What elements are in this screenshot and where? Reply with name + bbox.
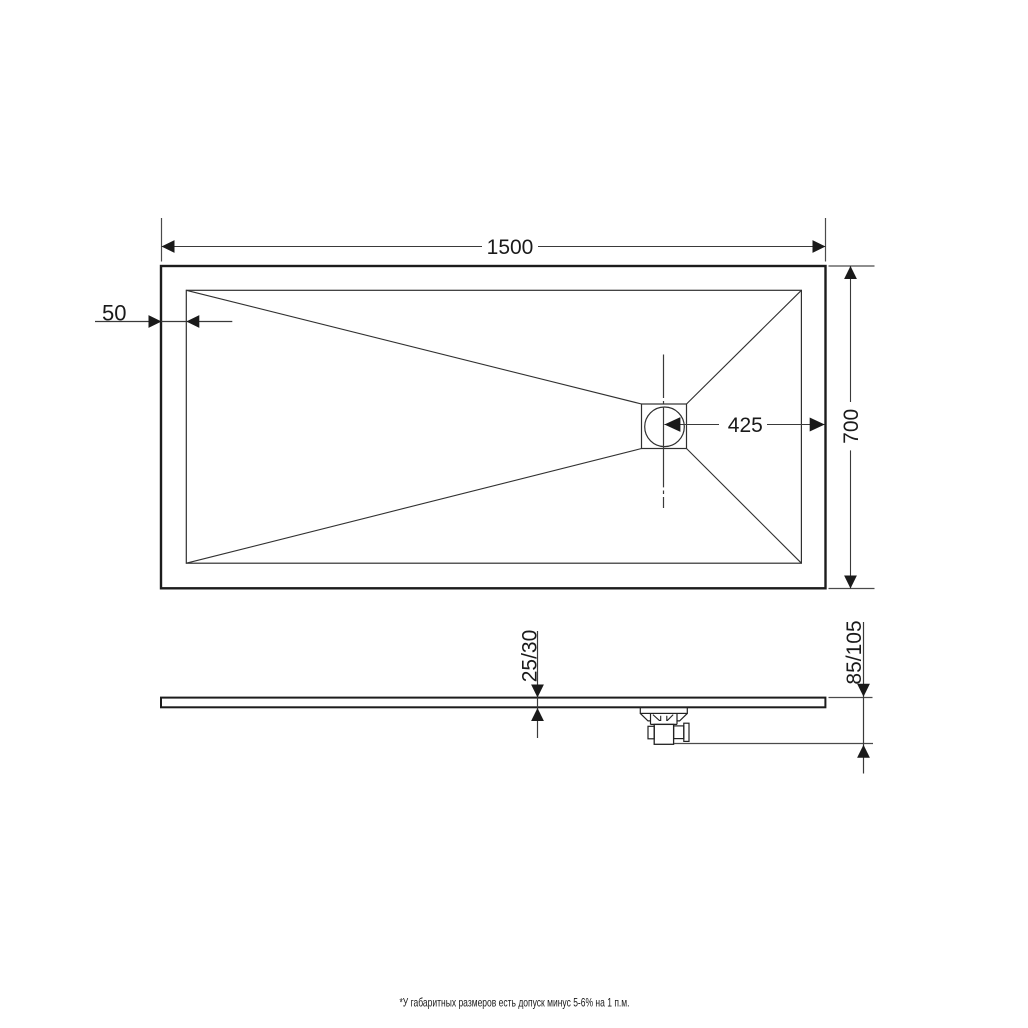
svg-text:700: 700 [840,409,863,444]
svg-text:1500: 1500 [487,236,534,259]
svg-text:25/30: 25/30 [518,630,541,683]
svg-text:*У габаритных размеров есть до: *У габаритных размеров есть допуск минус… [400,996,630,1010]
svg-text:85/105: 85/105 [843,620,866,684]
svg-text:425: 425 [728,414,763,437]
svg-text:50: 50 [102,300,126,325]
